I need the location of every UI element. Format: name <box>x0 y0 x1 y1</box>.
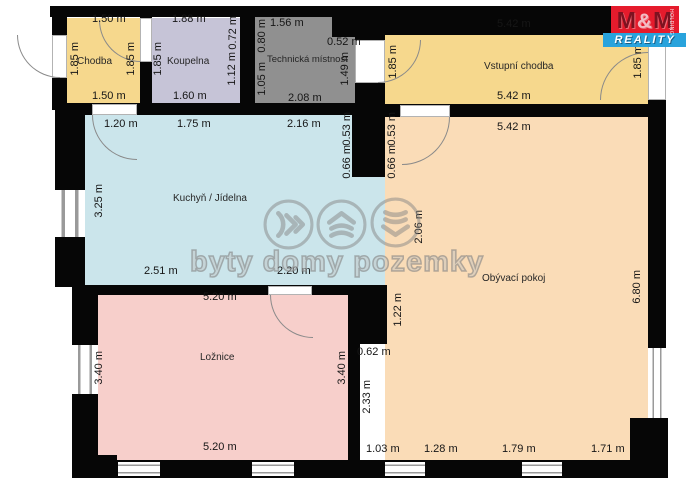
dim-obyvaci-bottom-4: 1.71 m <box>591 443 625 455</box>
wall <box>648 100 666 348</box>
door-opening-vstupni-obyvaci <box>400 105 450 117</box>
door-arc <box>17 35 60 78</box>
dim-technicka-left-bottom: 1.05 m <box>256 62 268 96</box>
dim-technicka-notch: 0.52 m <box>327 36 361 48</box>
dim-chodba-left: 1.85 m <box>69 42 81 76</box>
door-opening-entrance-right <box>648 45 666 100</box>
wall <box>72 394 98 460</box>
door-opening-chodba-koupelna <box>140 18 152 62</box>
dim-koupelna-left: 1.85 m <box>152 42 164 76</box>
wall <box>55 110 85 190</box>
wall <box>240 17 255 103</box>
watermark-text: byty domy pozemky <box>190 246 484 279</box>
wall <box>55 237 85 287</box>
wall <box>630 418 668 478</box>
door-opening-kuchyn-loznice <box>268 286 312 295</box>
wall-notch <box>332 17 355 37</box>
door-opening-chodba-kuchyn <box>92 104 137 115</box>
dim-kuchyn-top-2: 1.75 m <box>177 118 211 130</box>
dim-technicka-left-top: 0.80 m <box>256 19 268 53</box>
dim-koupelna-top-right: 0.72 m <box>227 16 239 50</box>
dim-obyvaci-left-lower: 0.66 m <box>386 145 398 179</box>
dim-obyvaci-bottom-3: 1.79 m <box>502 443 536 455</box>
room-obyvaci-pokoj <box>385 117 648 460</box>
room-label-chodba: Chodba <box>77 56 112 67</box>
wall <box>348 295 360 460</box>
room-label-kuchyn: Kuchyň / Jídelna <box>173 193 247 204</box>
dim-loznice-bottom: 5.20 m <box>203 441 237 453</box>
dim-technicka-top: 1.56 m <box>270 17 304 29</box>
dim-technicka-right: 1.49 m <box>339 52 351 86</box>
room-label-koupelna: Koupelna <box>167 56 209 67</box>
dim-technicka-bottom: 2.08 m <box>288 92 322 104</box>
wall <box>72 460 668 478</box>
room-label-technicka: Technická místnost <box>267 54 348 65</box>
dim-kuchyn-bottom-1: 2.51 m <box>144 265 178 277</box>
window <box>118 462 160 476</box>
wall <box>52 17 67 35</box>
dim-chodba-top: 1.50 m <box>92 13 126 25</box>
wall <box>52 78 67 110</box>
logo-holding-text: HOLDING <box>668 9 674 35</box>
dim-vstupni-bottom: 5.42 m <box>497 90 531 102</box>
window <box>252 462 294 476</box>
room-label-obyvaci: Obývací pokoj <box>482 273 545 284</box>
logo-m1: M <box>617 7 637 33</box>
wall-stub <box>352 115 385 177</box>
dim-kuchyn-right-upper: 0.53 m <box>341 112 353 146</box>
logo-ampersand: & <box>637 10 653 33</box>
dim-vstupni-left: 1.85 m <box>387 45 399 79</box>
wall <box>72 287 98 345</box>
dim-vstupni-top: 5.42 m <box>497 18 531 30</box>
dim-chodba-right: 1.85 m <box>125 42 137 76</box>
window <box>522 462 562 476</box>
dim-obyvaci-right: 6.80 m <box>631 270 643 304</box>
dim-kuchyn-top-1: 1.20 m <box>104 118 138 130</box>
window <box>57 190 83 237</box>
dim-loznice-top: 5.20 m <box>203 291 237 303</box>
dim-kuchyn-right-lower: 0.66 m <box>341 145 353 179</box>
room-label-vstupni: Vstupní chodba <box>484 61 554 72</box>
dim-koupelna-top: 1.88 m <box>172 13 206 25</box>
dim-vstupni-right: 1.85 m <box>632 45 644 79</box>
dim-obyvaci-left-upper: 0.53 m <box>386 112 398 146</box>
floor-plan: 1.50 m Chodba 1.85 m 1.85 m 1.50 m 1.88 … <box>0 0 686 484</box>
dim-obyvaci-top: 5.42 m <box>497 121 531 133</box>
dim-obyvaci-bottom-1: 1.03 m <box>366 443 400 455</box>
dim-obyvaci-stub-width: 0.62 m <box>357 346 391 358</box>
room-label-loznice: Ložnice <box>200 352 234 363</box>
dim-koupelna-right: 1.12 m <box>226 52 238 86</box>
dim-loznice-right: 3.40 m <box>336 351 348 385</box>
dim-obyvaci-bottom-2: 1.28 m <box>424 443 458 455</box>
dim-obyvaci-left-bottom: 2.33 m <box>361 380 373 414</box>
window <box>650 348 664 418</box>
dim-kuchyn-left: 3.25 m <box>93 184 105 218</box>
dim-kuchyn-top-3: 2.16 m <box>287 118 321 130</box>
dim-obyvaci-stub-height: 1.22 m <box>392 293 404 327</box>
dim-koupelna-bottom: 1.60 m <box>173 90 207 102</box>
dim-chodba-bottom: 1.50 m <box>92 90 126 102</box>
window <box>385 462 425 476</box>
dim-loznice-left: 3.40 m <box>93 351 105 385</box>
